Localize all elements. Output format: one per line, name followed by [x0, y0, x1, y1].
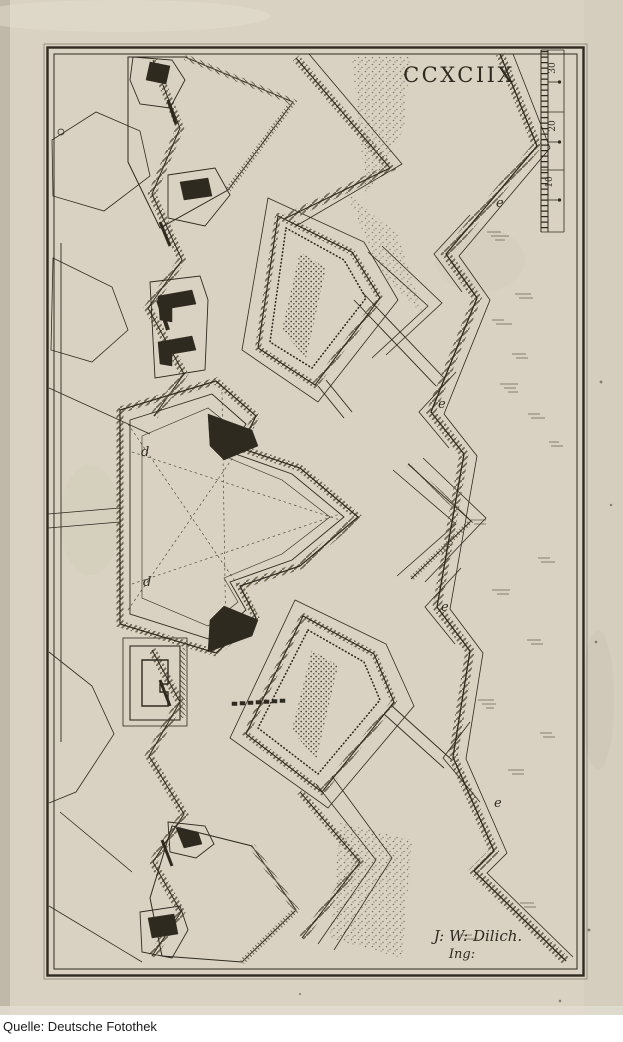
caption-text: Quelle: Deutsche Fotothek [3, 1019, 157, 1034]
signature-name: J: W: Dilich. [431, 927, 522, 945]
scale-label-30: 30 [548, 62, 558, 74]
letter-e-lower: e [441, 600, 449, 615]
scale-label-20: 20 [548, 120, 558, 132]
caption-bar: Quelle: Deutsche Fotothek [0, 1015, 623, 1042]
fortification-plan-engraving: 30 20 10 CCXCIIX J: W: Dilich. Ing: d d … [0, 0, 623, 1015]
plate-number: CCXCIIX [403, 63, 515, 87]
letter-e-bottom: e [494, 796, 502, 811]
letter-d-upper: d [141, 445, 149, 460]
scanned-engraving-page: 30 20 10 CCXCIIX J: W: Dilich. Ing: d d … [0, 0, 623, 1042]
scan-bottom-edge [0, 1006, 623, 1015]
letter-e-upper: e [438, 397, 446, 412]
signature-title: Ing: [448, 947, 475, 962]
letter-e-top: e [496, 196, 504, 211]
letter-d-lower: d [143, 575, 151, 590]
scale-label-10: 10 [545, 176, 555, 188]
scan-left-edge-shadow [0, 0, 10, 1015]
